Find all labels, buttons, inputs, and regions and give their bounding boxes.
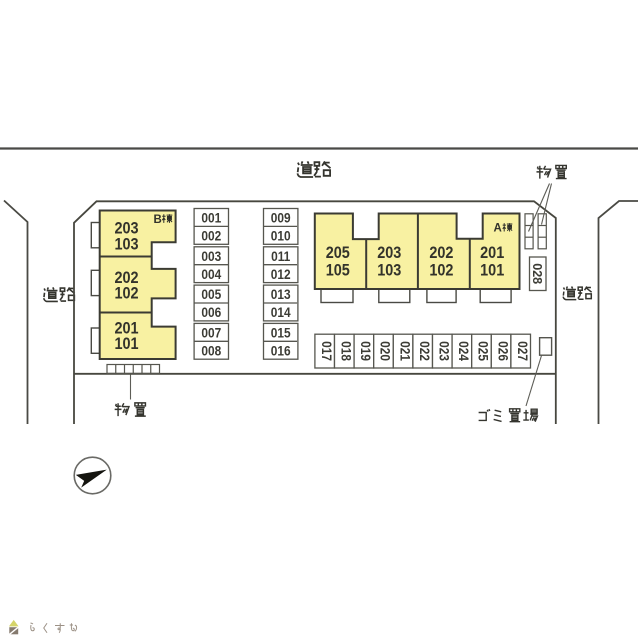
svg-text:005: 005 xyxy=(201,286,221,302)
svg-text:102: 102 xyxy=(114,284,138,302)
svg-text:022: 022 xyxy=(417,341,433,361)
svg-text:103: 103 xyxy=(377,262,401,280)
svg-text:003: 003 xyxy=(201,248,221,264)
svg-text:016: 016 xyxy=(271,342,291,358)
svg-text:103: 103 xyxy=(114,236,138,254)
svg-text:B: B xyxy=(154,214,162,226)
svg-text:101: 101 xyxy=(480,262,504,280)
svg-text:015: 015 xyxy=(271,325,291,341)
svg-text:102: 102 xyxy=(429,262,453,280)
svg-text:020: 020 xyxy=(377,341,393,361)
svg-text:019: 019 xyxy=(358,341,374,361)
svg-text:014: 014 xyxy=(271,304,292,320)
svg-text:202: 202 xyxy=(429,244,453,262)
svg-text:101: 101 xyxy=(114,335,138,353)
svg-text:007: 007 xyxy=(201,325,221,341)
svg-text:105: 105 xyxy=(326,262,350,280)
svg-text:025: 025 xyxy=(475,341,491,361)
svg-text:018: 018 xyxy=(338,341,354,361)
svg-text:010: 010 xyxy=(271,228,291,244)
svg-text:205: 205 xyxy=(326,244,350,262)
svg-text:009: 009 xyxy=(271,210,291,226)
svg-text:017: 017 xyxy=(319,341,335,361)
svg-text:203: 203 xyxy=(377,244,401,262)
svg-text:201: 201 xyxy=(480,244,504,262)
svg-text:013: 013 xyxy=(271,286,291,302)
svg-text:001: 001 xyxy=(201,210,221,226)
svg-text:002: 002 xyxy=(201,228,221,244)
svg-text:027: 027 xyxy=(515,341,531,361)
svg-text:028: 028 xyxy=(530,263,544,284)
svg-text:011: 011 xyxy=(271,248,290,264)
svg-text:012: 012 xyxy=(271,266,291,282)
svg-text:A: A xyxy=(494,223,502,235)
svg-text:004: 004 xyxy=(201,266,222,282)
svg-text:026: 026 xyxy=(495,341,511,361)
svg-text:008: 008 xyxy=(201,342,221,358)
svg-text:021: 021 xyxy=(397,341,413,361)
svg-text:006: 006 xyxy=(201,304,221,320)
svg-text:024: 024 xyxy=(456,341,472,362)
svg-text:023: 023 xyxy=(436,341,452,361)
